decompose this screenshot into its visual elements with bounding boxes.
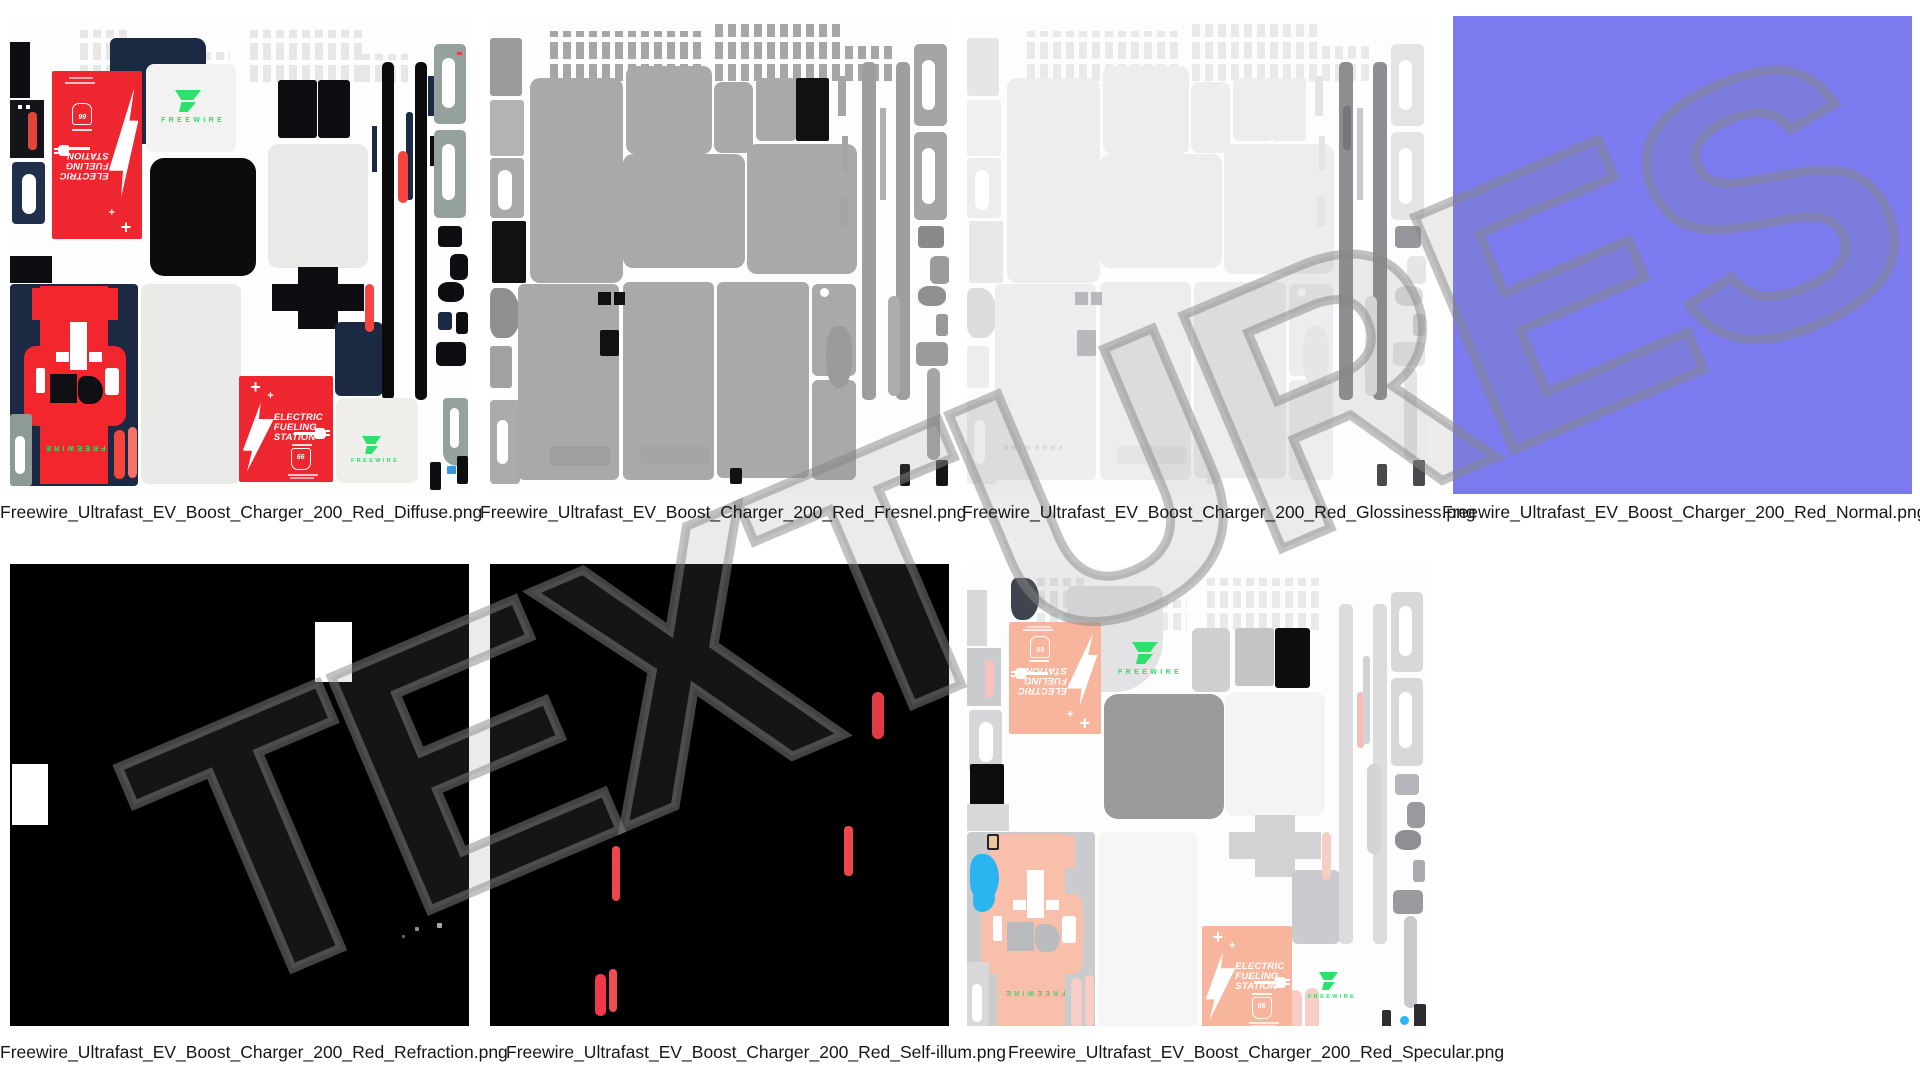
texture-shape [1377, 464, 1387, 486]
texture-shape [22, 174, 36, 214]
texture-shape [150, 158, 256, 276]
fine-print [290, 477, 314, 479]
fine-print [1027, 626, 1051, 628]
texture-shape [15, 436, 25, 474]
texture-shape [1233, 78, 1274, 141]
texture-shape [89, 352, 102, 362]
lightning-bolt-icon [1206, 952, 1236, 1020]
texture-shape [268, 144, 368, 268]
texture-shape [715, 24, 840, 81]
texture-shape [812, 380, 856, 480]
efs-label-box: + + ELECTRICFUELINGSTATION 66 [239, 376, 333, 482]
texture-shape [1365, 296, 1377, 396]
freewire-logo: FREEWIRE [362, 436, 399, 464]
texture-shape [598, 292, 611, 305]
texture-shape [490, 38, 522, 96]
texture-thumbnail-specular[interactable]: + + ELECTRICFUELINGSTATION 66 + + [967, 564, 1426, 1026]
texture-shape [497, 420, 508, 464]
texture-shape [1382, 1010, 1391, 1026]
texture-shape [927, 368, 940, 460]
freewire-bolt-icon [362, 436, 381, 444]
texture-shape [1395, 286, 1423, 306]
texture-shape [457, 52, 462, 55]
texture-shape [442, 58, 455, 108]
texture-shape [1091, 292, 1102, 305]
texture-shape [450, 408, 459, 448]
texture-shape [1192, 628, 1230, 692]
texture-shape [623, 154, 745, 268]
texture-shape [28, 112, 37, 150]
texture-shape [365, 284, 374, 332]
texture-shape [1191, 82, 1230, 153]
freewire-logo: FREEWIRE [1132, 642, 1182, 676]
texture-shape [436, 342, 466, 366]
texture-shape [717, 282, 809, 478]
texture-shape [930, 256, 949, 284]
texture-shape [842, 136, 848, 170]
texture-shape [530, 78, 623, 283]
texture-shape [1363, 656, 1370, 744]
texture-shape [442, 144, 455, 200]
texture-shape [1413, 314, 1425, 336]
texture-shape [985, 660, 994, 698]
texture-shape [438, 282, 464, 302]
texture-shape [1399, 60, 1412, 110]
plug-icon [315, 428, 326, 439]
texture-shape [840, 196, 848, 226]
texture-shape [609, 969, 617, 1012]
texture-shape [1085, 975, 1094, 1026]
freewire-logo: FREEWIRE [1319, 972, 1356, 1000]
texture-shape [820, 288, 829, 297]
texture-shape [872, 692, 884, 739]
freewire-bolt-icon [1319, 972, 1338, 980]
texture-shape [838, 76, 846, 116]
texture-shape [1399, 148, 1412, 204]
texture-shape [114, 430, 125, 479]
texture-shape [1404, 368, 1417, 460]
fine-print [1251, 1025, 1275, 1026]
texture-shape [1395, 226, 1421, 248]
texture-shape [640, 446, 710, 464]
texture-shape [141, 284, 241, 484]
texture-shape [756, 78, 797, 141]
plus-mark: + [1213, 927, 1224, 948]
freewire-logo: FREEWIRE [175, 90, 225, 124]
texture-shape [1027, 870, 1044, 918]
plus-mark: + [121, 216, 132, 237]
texture-shape [888, 296, 900, 396]
texture-shape [967, 100, 1001, 156]
freewire-bolt-icon [1322, 982, 1335, 990]
freewire-bolt-icon [179, 102, 196, 112]
file-label: Freewire_Ultrafast_EV_Boost_Charger_200_… [1442, 502, 1920, 523]
texture-shape [1399, 692, 1412, 748]
efs-label-box: + + ELECTRICFUELINGSTATION 66 [1202, 926, 1292, 1026]
texture-shape [1011, 578, 1039, 620]
texture-shape [1035, 924, 1060, 952]
texture-shape [1395, 830, 1421, 850]
texture-shape [1098, 832, 1198, 1026]
texture-shape [1194, 282, 1286, 478]
texture-thumbnail-diffuse[interactable]: + + ELECTRICFUELINGSTATION 66 + + [10, 16, 469, 494]
texture-shape [1062, 916, 1076, 943]
lightning-bolt-icon [109, 88, 139, 197]
texture-shape [1104, 694, 1224, 819]
texture-thumbnail-refraction[interactable] [10, 564, 469, 1026]
texture-thumbnail-glossiness[interactable]: FREEWIRE [967, 16, 1426, 494]
texture-shape [826, 326, 852, 388]
texture-shape [989, 836, 1075, 868]
freewire-bolt-icon [1136, 654, 1153, 664]
powered-by-text [1252, 993, 1272, 995]
texture-shape [492, 221, 526, 283]
texture-shape [614, 292, 625, 305]
texture-shape [975, 170, 989, 210]
texture-shape [1103, 66, 1189, 154]
plug-cord [1025, 672, 1048, 675]
texture-shape [36, 368, 45, 393]
texture-shape [1407, 256, 1426, 284]
freewire-bolt-icon [175, 90, 201, 100]
powered-by-text [1029, 660, 1049, 662]
texture-shape [936, 314, 948, 336]
plug-cord [1254, 981, 1277, 984]
texture-shape [1075, 292, 1088, 305]
texture-shape [1317, 196, 1325, 226]
phillips-66-badge: 66 [1252, 997, 1272, 1019]
plus-mark: + [109, 205, 115, 217]
texture-shape [796, 78, 829, 141]
texture-shape [550, 446, 610, 466]
plus-mark: + [1229, 940, 1235, 952]
texture-shape [272, 284, 364, 311]
texture-shape [1343, 106, 1351, 150]
texture-shape [490, 346, 512, 388]
texture-shape [972, 984, 982, 1022]
texture-shape [318, 80, 350, 138]
texture-shape [969, 221, 1003, 283]
texture-shape [900, 464, 910, 486]
texture-shape [967, 346, 989, 388]
fine-print [65, 82, 95, 84]
texture-shape [922, 60, 935, 110]
texture-shape [1207, 578, 1319, 630]
texture-shape [967, 590, 987, 646]
texture-shape [490, 288, 520, 338]
texture-shape [32, 288, 118, 320]
texture-shape [1117, 446, 1187, 464]
texture-shape [1289, 380, 1333, 480]
texture-shape [1013, 900, 1026, 910]
lightning-bolt-icon [243, 403, 274, 472]
file-label: Freewire_Ultrafast_EV_Boost_Charger_200_… [0, 502, 480, 523]
texture-shape [498, 170, 512, 210]
texture-shape [398, 151, 408, 203]
texture-shape [457, 456, 468, 484]
texture-shape [56, 352, 69, 362]
texture-shape [862, 62, 876, 400]
texture-shape [989, 836, 997, 848]
texture-shape [967, 648, 1001, 706]
plug-icon [1275, 977, 1286, 988]
file-label: Freewire_Ultrafast_EV_Boost_Charger_200_… [962, 502, 1442, 523]
texture-shape [1357, 108, 1363, 200]
fine-print [288, 474, 318, 476]
texture-thumbnail-normal[interactable] [1453, 16, 1912, 494]
plus-mark: + [1079, 712, 1090, 733]
texture-shape [430, 462, 441, 490]
texture-shape [1235, 628, 1274, 686]
freewire-wordmark-inverted: FREEWIRE [1003, 989, 1066, 996]
texture-shape [10, 42, 30, 98]
texture-shape [1367, 764, 1381, 854]
file-label: Freewire_Ultrafast_EV_Boost_Charger_200_… [0, 1042, 504, 1063]
texture-shape [1315, 76, 1323, 116]
texture-shape [1007, 922, 1034, 951]
texture-shape [880, 108, 886, 200]
texture-shape [1393, 890, 1423, 914]
texture-thumbnail-fresnel[interactable] [490, 16, 949, 494]
plus-mark: + [1067, 707, 1073, 719]
texture-shape [916, 342, 948, 366]
texture-shape [1393, 342, 1425, 366]
texture-shape [918, 226, 944, 248]
fine-print [69, 77, 93, 79]
texture-shape [1407, 802, 1425, 828]
plug-icon [1015, 668, 1026, 679]
texture-shape [382, 62, 394, 400]
efs-label-box-inverted: + + ELECTRICFUELINGSTATION 66 [1009, 622, 1101, 734]
texture-shape [70, 322, 87, 370]
texture-shape [450, 254, 468, 280]
plus-mark: + [267, 390, 273, 402]
texture-shape [490, 100, 524, 156]
texture-shape [993, 916, 1002, 941]
texture-shape [1400, 1016, 1409, 1025]
texture-shape [18, 105, 22, 109]
texture-shape [26, 105, 30, 109]
texture-thumbnail-self-illum[interactable] [490, 564, 949, 1026]
texture-shape [1413, 860, 1425, 882]
freewire-wordmark-inverted: FREEWIRE [43, 444, 106, 451]
texture-shape [967, 288, 997, 338]
texture-shape [1339, 604, 1353, 944]
texture-shape [1225, 692, 1325, 816]
texture-shape [1404, 916, 1417, 1008]
texture-shape [1007, 78, 1100, 283]
texture-shape [922, 148, 935, 204]
texture-shape [372, 126, 377, 172]
texture-shape [1275, 628, 1310, 688]
plus-mark: + [250, 377, 261, 398]
powered-by-text [72, 129, 92, 131]
texture-shape [415, 62, 427, 400]
texture-shape [967, 38, 999, 96]
texture-shape [278, 80, 317, 138]
fine-print [1023, 629, 1053, 631]
texture-shape [979, 722, 993, 762]
texture-shape [974, 420, 985, 464]
freewire-bolt-icon [1132, 642, 1158, 652]
texture-shape [315, 622, 352, 682]
texture-shape [128, 427, 137, 478]
phillips-66-badge: 66 [291, 448, 311, 470]
texture-shape [250, 30, 362, 82]
texture-shape [335, 322, 383, 396]
file-label: Freewire_Ultrafast_EV_Boost_Charger_200_… [504, 1042, 1008, 1063]
texture-shape [437, 923, 442, 928]
texture-shape [612, 846, 620, 901]
lightning-bolt-icon [1067, 633, 1097, 706]
file-label: Freewire_Ultrafast_EV_Boost_Charger_200_… [480, 502, 962, 523]
texture-shape [1100, 154, 1222, 268]
texture-shape [918, 286, 946, 306]
texture-shape [447, 466, 456, 474]
freewire-bolt-icon [365, 446, 378, 454]
plug-icon [58, 145, 69, 156]
texture-preview-sheet: + + ELECTRICFUELINGSTATION 66 + + [0, 0, 1920, 1080]
plug-cord [294, 432, 318, 435]
plug-cord [67, 147, 90, 150]
texture-shape [967, 804, 1009, 831]
texture-shape [1413, 460, 1425, 486]
texture-shape [438, 226, 462, 247]
texture-shape [1046, 900, 1059, 910]
texture-shape [1077, 330, 1096, 356]
phillips-66-badge: 66 [1030, 636, 1050, 658]
texture-shape [12, 764, 48, 825]
freewire-wordmark-inverted: FREEWIRE [1000, 443, 1063, 450]
texture-shape [10, 256, 52, 283]
texture-shape [1303, 326, 1329, 388]
texture-shape [1297, 288, 1306, 297]
texture-shape [1071, 978, 1082, 1026]
fine-print [1249, 1022, 1279, 1024]
file-label: Freewire_Ultrafast_EV_Boost_Charger_200_… [1008, 1042, 1474, 1063]
efs-label-box-inverted: + + ELECTRICFUELINGSTATION 66 [52, 71, 142, 239]
texture-shape [456, 312, 468, 334]
texture-shape [844, 826, 853, 876]
texture-shape [936, 460, 948, 486]
texture-shape [105, 368, 119, 395]
texture-shape [1322, 832, 1331, 880]
phillips-66-badge: 66 [73, 103, 93, 125]
texture-shape [1229, 832, 1321, 859]
texture-shape [1207, 468, 1219, 484]
texture-shape [415, 927, 419, 931]
texture-shape [595, 974, 606, 1016]
texture-shape [600, 330, 619, 356]
texture-shape [730, 468, 742, 484]
texture-shape [1292, 870, 1340, 944]
texture-shape [1319, 136, 1325, 170]
texture-shape [1273, 78, 1306, 141]
texture-shape [438, 312, 452, 330]
texture-shape [714, 82, 753, 153]
texture-shape [1399, 606, 1412, 656]
texture-shape [402, 935, 405, 938]
powered-by-text [292, 444, 312, 446]
texture-shape [1395, 774, 1419, 795]
texture-shape [1192, 24, 1317, 81]
texture-shape [626, 66, 712, 154]
texture-shape [78, 376, 103, 404]
texture-shape [50, 374, 77, 403]
texture-shape [1414, 1004, 1426, 1026]
